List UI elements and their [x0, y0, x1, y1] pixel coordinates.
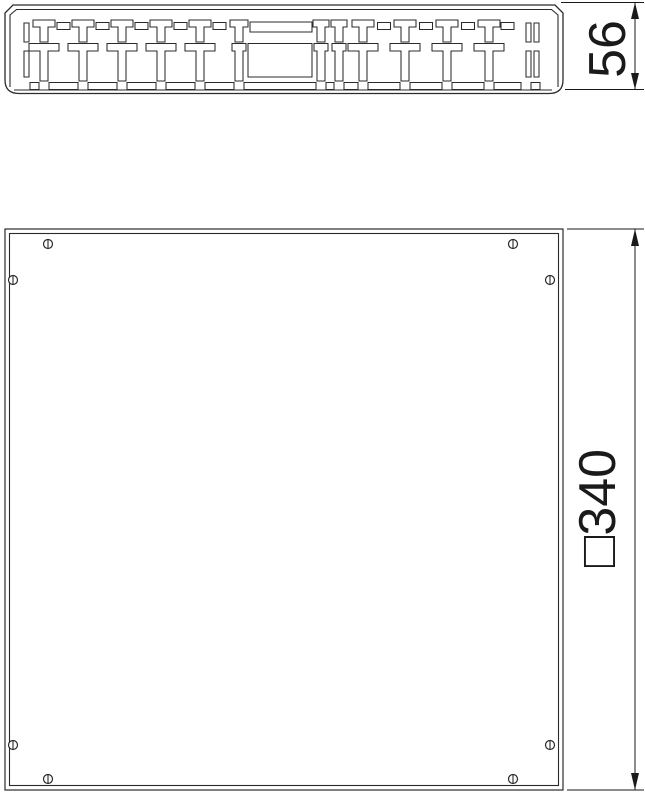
knockout-slot — [390, 44, 420, 82]
plan-view — [5, 229, 563, 790]
knockout-slot — [462, 23, 475, 30]
knockout-slot — [313, 20, 329, 42]
knockout-slot — [501, 23, 514, 30]
height-dimension-label: 56 — [579, 20, 637, 78]
knockout-slot — [526, 23, 531, 42]
knockout-slot — [494, 83, 521, 90]
technical-drawing-page: 56 □340 — [0, 0, 645, 794]
dimension-drawing: 56 □340 — [0, 0, 645, 794]
knockout-slot — [111, 20, 133, 42]
knockout-slot — [30, 83, 39, 90]
knockout-slot — [24, 23, 29, 42]
knockout-slot — [174, 23, 187, 30]
knockout-slot — [57, 23, 70, 30]
knockout-slot — [352, 20, 374, 42]
knockout-slot — [394, 20, 416, 42]
knockout-slot — [326, 83, 334, 90]
knockout-slot — [244, 83, 316, 90]
knockout-slot — [534, 51, 539, 77]
slotted-screw-icon — [44, 240, 53, 249]
knockout-slot — [24, 51, 29, 77]
knockout-slot — [534, 23, 539, 42]
knockout-slot — [166, 83, 195, 90]
knockout-slot — [88, 83, 117, 90]
knockout-slot — [526, 51, 531, 77]
slotted-screw-icon — [9, 276, 18, 285]
knockout-slot — [213, 23, 226, 30]
knockout-slot — [452, 83, 484, 90]
knockout-slot — [344, 83, 358, 90]
knockout-slot — [189, 20, 211, 42]
knockout-slot — [150, 20, 172, 42]
slotted-screw-icon — [509, 775, 518, 784]
slotted-screw-icon — [546, 741, 555, 750]
knockout-slot — [68, 44, 98, 82]
width-dimension-label: □340 — [569, 449, 627, 567]
slotted-screw-icon — [546, 276, 555, 285]
knockout-slot — [331, 20, 347, 42]
slotted-screw-icon — [9, 741, 18, 750]
knockout-slot — [531, 83, 540, 90]
arrowhead-up-icon — [631, 229, 639, 246]
knockout-slot — [72, 20, 94, 42]
slotted-screw-icon — [44, 775, 53, 784]
knockout-slot — [33, 20, 55, 42]
knockout-slot — [348, 44, 378, 82]
knockout-slot — [378, 23, 391, 30]
slotted-screw-icon — [509, 240, 518, 249]
knockout-slot — [205, 83, 234, 90]
knockout-slot — [29, 44, 59, 82]
knockout-slot — [368, 83, 400, 90]
knockout-slot — [230, 20, 248, 42]
knockout-slot — [474, 44, 504, 82]
side-view — [5, 5, 563, 94]
arrowhead-down-icon — [631, 773, 639, 790]
knockout-slot — [146, 44, 176, 82]
arrowhead-up-icon — [631, 3, 639, 20]
knockout-slot — [49, 83, 78, 90]
knockout-slot — [232, 44, 246, 82]
knockout-slot — [107, 44, 137, 82]
knockout-slot — [248, 44, 312, 78]
knockout-slot — [420, 23, 433, 30]
knockout-pattern — [24, 20, 540, 90]
knockout-slot — [96, 23, 109, 30]
knockout-slot — [250, 22, 312, 32]
knockout-slot — [436, 20, 458, 42]
cover-plate-outer-edge — [5, 229, 563, 790]
knockout-slot — [127, 83, 156, 90]
knockout-slot — [135, 23, 148, 30]
knockout-slot — [410, 83, 442, 90]
knockout-slot — [432, 44, 462, 82]
knockout-slot — [332, 44, 346, 82]
knockout-slot — [478, 20, 500, 42]
plan-view-dimension: □340 — [567, 229, 644, 790]
knockout-slot — [185, 44, 215, 82]
knockout-slot — [314, 44, 328, 82]
side-view-dimension: 56 — [561, 3, 644, 90]
